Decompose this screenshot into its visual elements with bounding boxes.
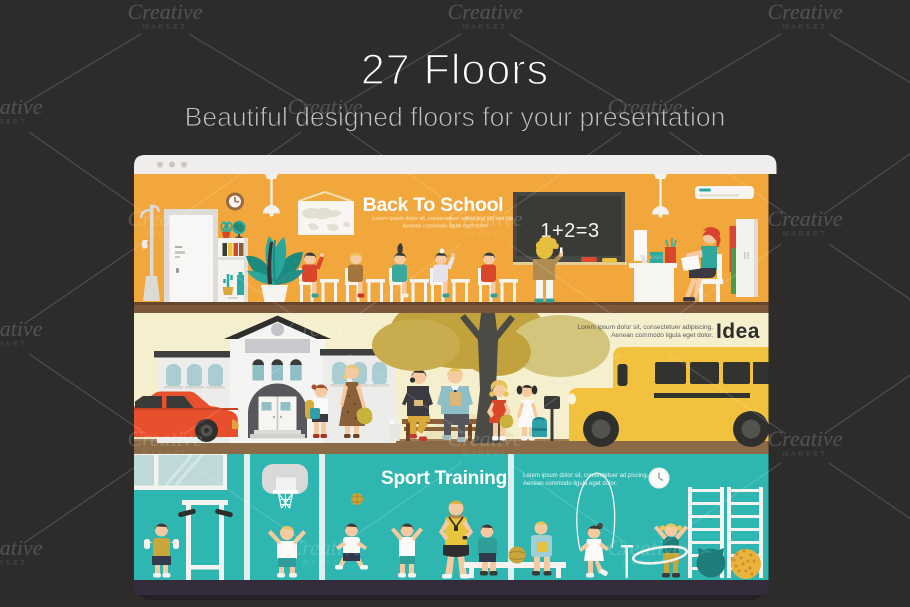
svg-text:Creative: Creative (288, 316, 363, 341)
svg-text:Creative: Creative (608, 316, 683, 341)
svg-text:MARKET: MARKET (623, 119, 667, 126)
svg-text:Creative: Creative (608, 535, 683, 560)
svg-text:Creative: Creative (768, 206, 843, 231)
svg-text:Creative: Creative (448, 206, 523, 231)
svg-text:Creative: Creative (448, 0, 523, 24)
svg-text:MARKET: MARKET (463, 24, 507, 31)
svg-text:MARKET: MARKET (0, 119, 27, 126)
svg-text:MARKET: MARKET (783, 231, 827, 238)
svg-text:MARKET: MARKET (303, 560, 347, 567)
svg-text:Creative: Creative (128, 426, 203, 451)
svg-text:MARKET: MARKET (303, 341, 347, 348)
svg-text:MARKET: MARKET (623, 560, 667, 567)
svg-text:MARKET: MARKET (143, 24, 187, 31)
svg-text:MARKET: MARKET (0, 560, 27, 567)
svg-text:Creative: Creative (0, 316, 43, 341)
svg-text:MARKET: MARKET (783, 451, 827, 458)
svg-text:Creative: Creative (768, 0, 843, 24)
svg-text:Idea: Idea (716, 320, 760, 343)
svg-text:MARKET: MARKET (303, 119, 347, 126)
svg-text:MARKET: MARKET (143, 231, 187, 238)
svg-text:Creative: Creative (288, 94, 363, 119)
svg-text:Creative: Creative (768, 426, 843, 451)
svg-text:MARKET: MARKET (783, 24, 827, 31)
svg-text:Creative: Creative (448, 426, 523, 451)
svg-text:Creative: Creative (0, 94, 43, 119)
svg-text:MARKET: MARKET (463, 451, 507, 458)
svg-text:MARKET: MARKET (143, 451, 187, 458)
svg-text:MARKET: MARKET (463, 231, 507, 238)
svg-text:Creative: Creative (288, 535, 363, 560)
svg-text:Creative: Creative (608, 94, 683, 119)
svg-text:27 Floors: 27 Floors (361, 46, 549, 94)
svg-text:Sport Training: Sport Training (381, 468, 507, 489)
svg-text:Creative: Creative (128, 206, 203, 231)
svg-text:Lorem ipsum dolor sit, consect: Lorem ipsum dolor sit, consectetuer ad p… (523, 473, 649, 479)
svg-text:Creative: Creative (128, 0, 203, 24)
svg-text:MARKET: MARKET (623, 341, 667, 348)
svg-text:MARKET: MARKET (0, 341, 27, 348)
svg-text:Creative: Creative (0, 535, 43, 560)
